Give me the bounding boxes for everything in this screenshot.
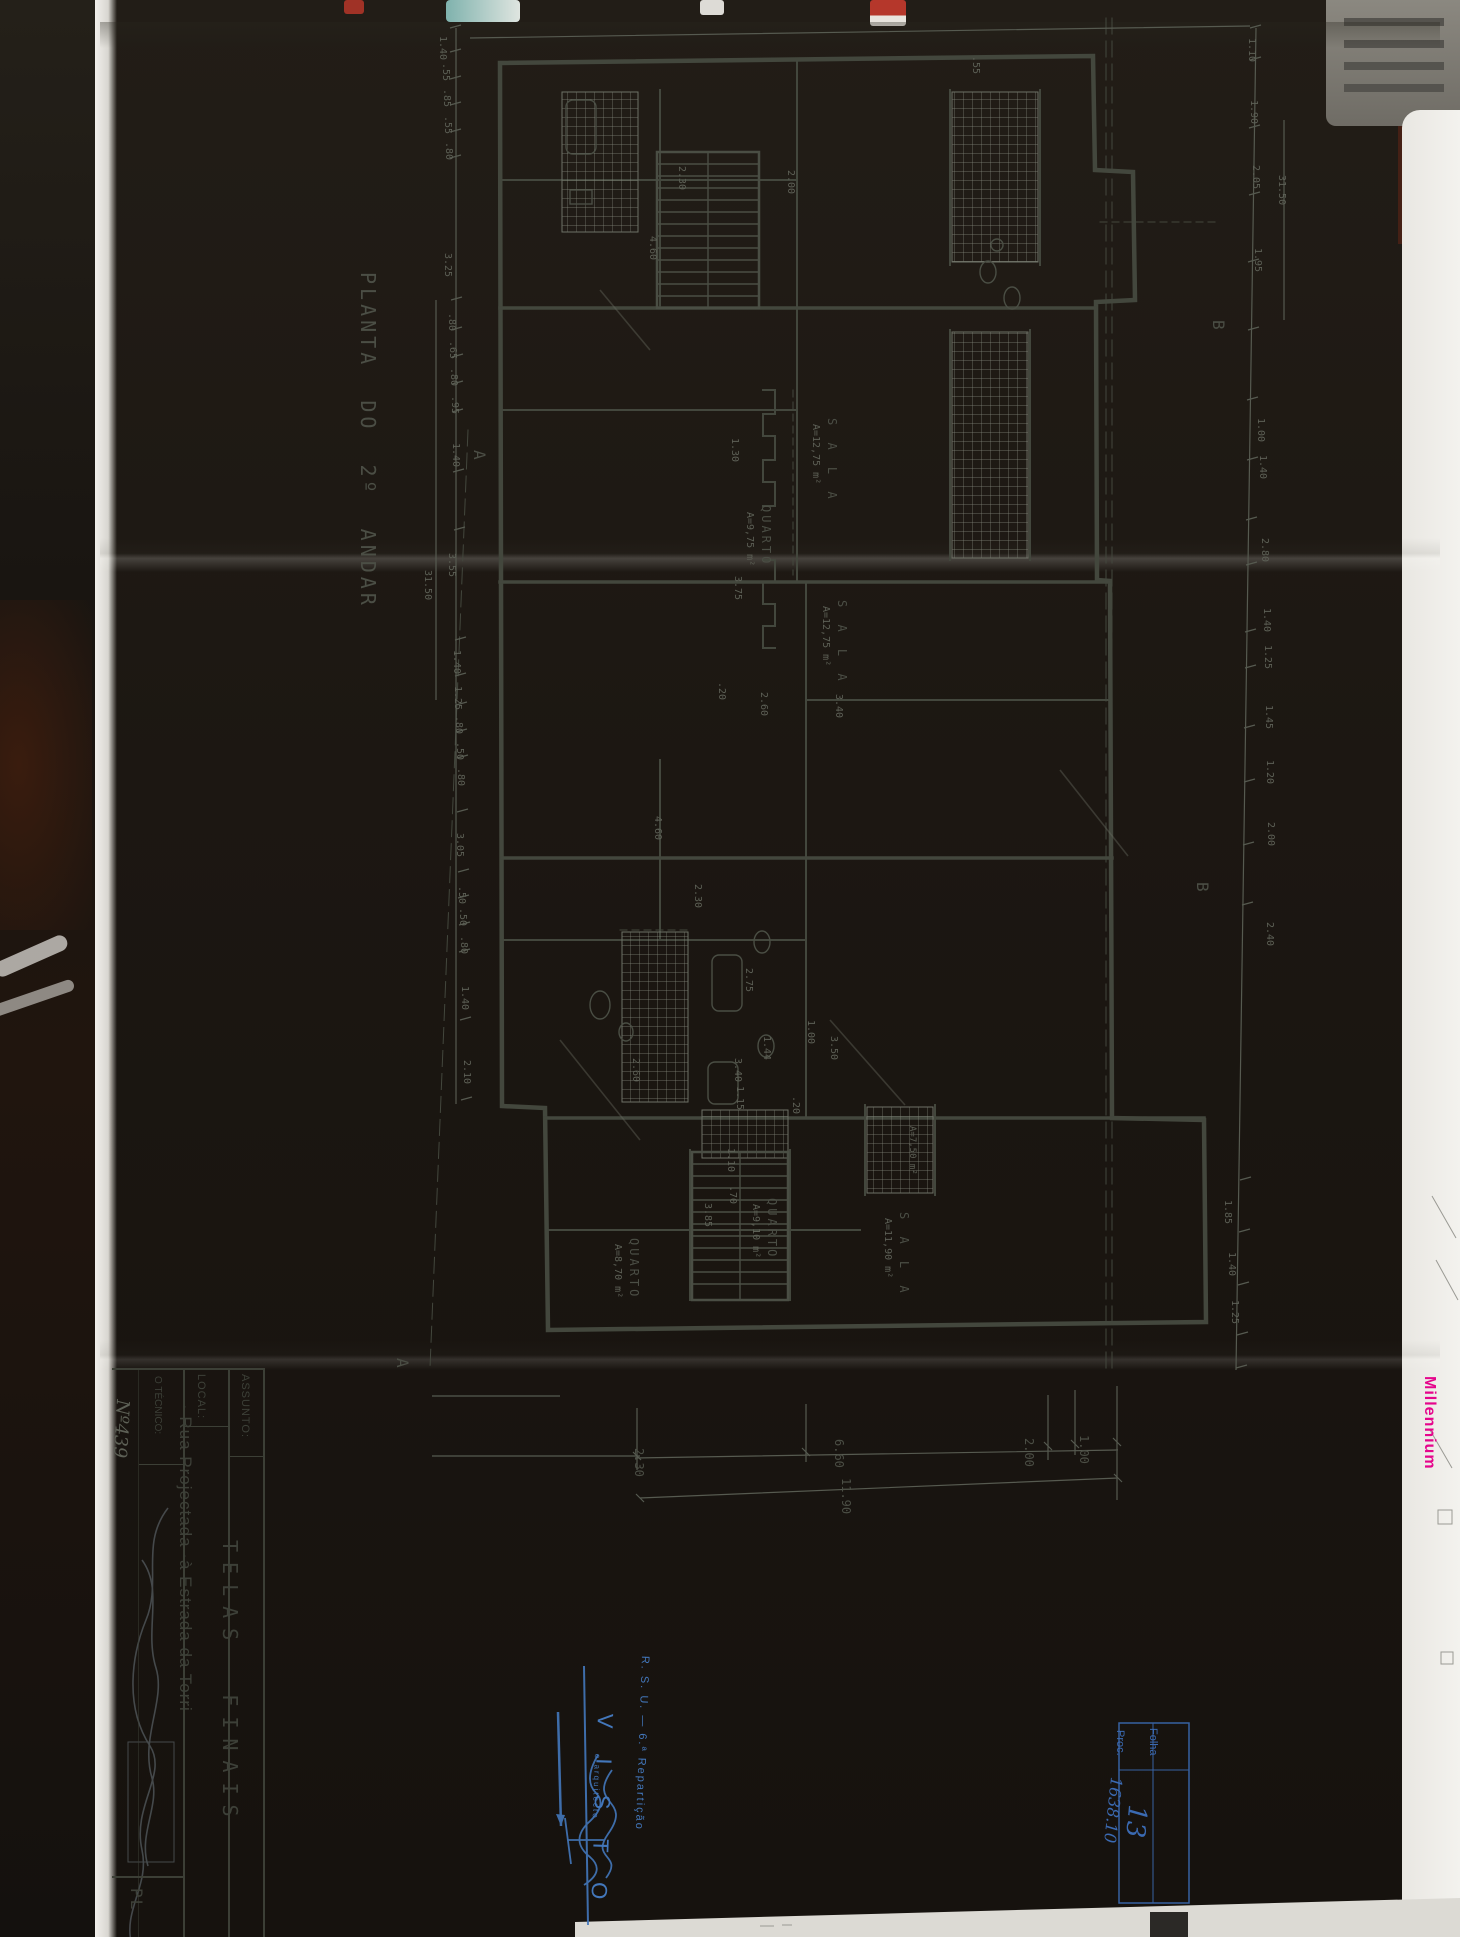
background-item-teal (446, 0, 520, 22)
paper-curled-edge (95, 0, 117, 1937)
background-item-red (344, 0, 364, 14)
dark-object-bottom-right (1150, 1912, 1188, 1937)
blueprint-paper (0, 0, 1460, 1937)
table-red-sheen (0, 600, 92, 930)
photo-of-blueprint: PLANTA DO 2º ANDARAABBS A L AA=12,75 m²Q… (0, 0, 1460, 1937)
background-item-white (700, 0, 724, 15)
